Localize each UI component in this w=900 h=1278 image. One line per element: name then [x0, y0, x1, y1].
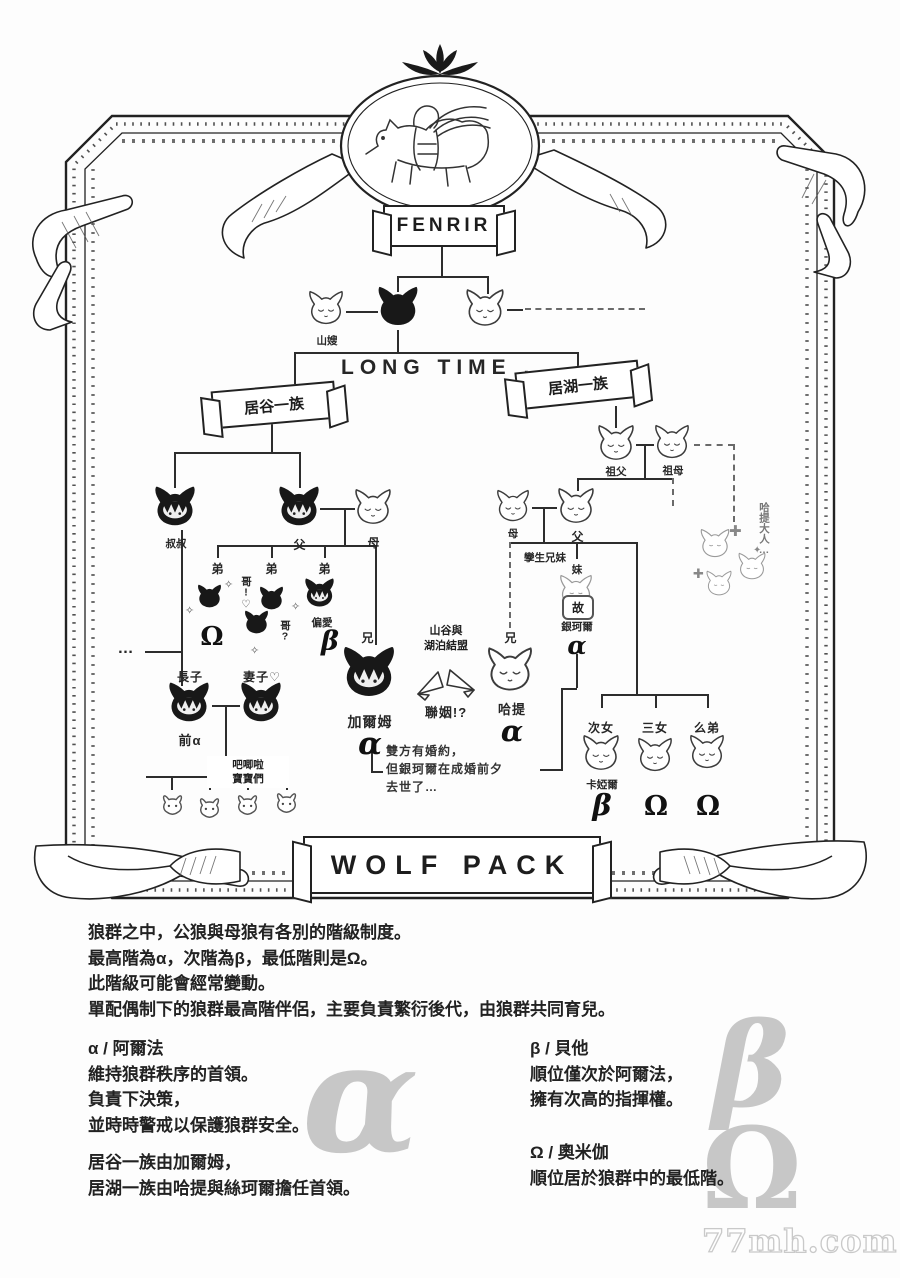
- site-watermark: 77mh.com: [702, 1222, 897, 1260]
- black-ancestor-wolf-icon: [375, 286, 421, 326]
- engagement-note-line3: 去世了…: [386, 778, 438, 795]
- valley-mother-wolf-icon: [352, 488, 394, 525]
- connector-line: [397, 276, 489, 278]
- grandfather-label: 祖父: [606, 464, 627, 479]
- hati-fans-text: 哈提大人…: [757, 502, 772, 582]
- brother-call1: 哥!♡: [239, 576, 254, 620]
- brother2a-wolf-icon: [258, 586, 285, 610]
- brother1-rank: Ω: [200, 622, 223, 652]
- third-daughter-label: 三女: [642, 719, 668, 736]
- intro-line1: 狼群之中，公狼與母狼有各別的階級制度。: [88, 920, 615, 946]
- leaders-line1: 居谷一族由加爾姆，: [88, 1150, 360, 1176]
- engagement-note-line1: 雙方有婚約，: [386, 742, 464, 759]
- uncle-wolf-icon: [152, 486, 198, 526]
- alliance-flags-icon: [408, 658, 484, 702]
- hati-rank: α: [501, 714, 523, 748]
- youngest-brother-wolf-icon: [687, 734, 727, 769]
- babies-line1: 吧唧啦: [210, 758, 286, 772]
- alliance-line2: 湖泊結盟: [424, 639, 468, 654]
- garm-wolf-icon: [340, 646, 398, 697]
- engagement-note-line2: 但銀珂爾在成婚前夕: [386, 760, 503, 777]
- third-daughter-wolf-icon: [635, 737, 675, 772]
- brother1-label: 弟: [211, 560, 224, 577]
- youngest-brother-rank: Ω: [696, 791, 720, 822]
- beta-title: β / 貝他: [530, 1036, 683, 1062]
- alliance-note: 山谷與 湖泊結盟: [424, 624, 468, 654]
- leaders-note: 居谷一族由加爾姆， 居湖一族由哈提與絲珂爾擔任首領。: [88, 1150, 360, 1201]
- valley-mother-label: 母: [367, 534, 380, 551]
- brother3-rank: β: [321, 626, 339, 657]
- connector-line: [294, 352, 296, 388]
- pup1-icon: [159, 794, 186, 816]
- ginkor-rank: α: [567, 631, 586, 660]
- yamauba-label: 山嫂: [317, 333, 338, 348]
- brother2-label: 弟: [265, 560, 278, 577]
- alpha-title: α / 阿爾法: [88, 1036, 309, 1062]
- valley-clan-name: 居谷一族: [243, 392, 305, 418]
- more-relatives-ellipsis: …: [118, 640, 135, 658]
- connector-line: [441, 245, 443, 276]
- grandmother-wolf-icon: [652, 424, 692, 459]
- lake-father-wolf-icon: [555, 487, 597, 524]
- pup4-icon: [273, 792, 300, 814]
- brother3-wolf-icon: [303, 578, 336, 607]
- lake-mother-wolf-icon: [494, 489, 532, 522]
- beta-line2: 擁有次高的指揮權。: [530, 1087, 683, 1113]
- grandfather-wolf-icon: [595, 424, 637, 461]
- beta-description: β / 貝他 順位僅次於阿爾法， 擁有次高的指揮權。: [530, 1036, 683, 1113]
- pup3-icon: [234, 794, 261, 816]
- marriage-label: 聯姻!?: [425, 702, 467, 721]
- pup2-icon: [196, 797, 223, 819]
- fan-wolf3-icon: [704, 570, 734, 596]
- beta-line1: 順位僅次於阿爾法，: [530, 1062, 683, 1088]
- wife-wolf-icon: [238, 682, 284, 722]
- alpha-line1: 維持狼群秩序的首領。: [88, 1062, 309, 1088]
- wolf-pack-title: WOLF PACK: [331, 850, 573, 881]
- garm-rank: α: [358, 726, 382, 762]
- babies-note: 吧唧啦 寶寶們: [207, 756, 289, 788]
- deceased-badge: 故: [562, 595, 594, 620]
- former-alpha-label: 前α: [179, 730, 202, 749]
- manga-page: FENRIR 山嫂 LONG TIME ... 居谷一族 居湖一族 … 叔叔 父…: [0, 0, 900, 1278]
- valley-elder-brother-label: 兄: [361, 629, 374, 646]
- connector-line: [346, 311, 378, 313]
- fenrir-crest: [338, 70, 542, 222]
- omega-line1: 順位居於狼群中的最低階。: [530, 1166, 734, 1192]
- babies-line2: 寶寶們: [210, 772, 286, 786]
- eldest-son-wolf-icon: [166, 682, 212, 722]
- lake-mother-label: 母: [508, 526, 519, 541]
- uncle-label: 叔叔: [166, 536, 187, 551]
- white-ancestor-wolf-icon: [463, 288, 507, 327]
- lake-elder-brother-label: 兄: [504, 629, 517, 646]
- brother-call2: 哥?: [278, 620, 293, 654]
- valley-father-wolf-icon: [276, 486, 322, 526]
- connector-line: [507, 309, 523, 311]
- omega-description: Ω / 奧米伽 順位居於狼群中的最低階。: [530, 1140, 734, 1191]
- kayar-wolf-icon: [580, 734, 622, 771]
- connector-line: [397, 330, 399, 354]
- alliance-line1: 山谷與: [424, 624, 468, 639]
- brother3-label: 弟: [318, 560, 331, 577]
- lake-father-label: 父: [571, 528, 584, 545]
- wolf-pack-banner: WOLF PACK: [303, 836, 601, 894]
- intro-line2: 最高階為α，次階為β，最低階則是Ω。: [88, 946, 615, 972]
- leaders-line2: 居湖一族由哈提與絲珂爾擔任首領。: [88, 1176, 360, 1202]
- lake-clan-name: 居湖一族: [547, 371, 609, 398]
- twins-label: 孿生兄妹: [522, 550, 568, 565]
- third-daughter-rank: Ω: [644, 791, 668, 822]
- valley-father-label: 父: [293, 536, 306, 553]
- fan-wolf1-icon: [698, 528, 732, 558]
- fenrir-title: FENRIR: [397, 215, 492, 237]
- connector-line: [294, 352, 579, 354]
- fenrir-banner: FENRIR: [383, 205, 505, 247]
- omega-title: Ω / 奧米伽: [530, 1140, 734, 1166]
- alpha-line3: 並時時警戒以保護狼群安全。: [88, 1113, 309, 1139]
- alpha-description: α / 阿爾法 維持狼群秩序的首領。 負責下決策， 並時時警戒以保護狼群安全。: [88, 1036, 309, 1138]
- intro-paragraph: 狼群之中，公狼與母狼有各別的階級制度。 最高階為α，次階為β，最低階則是Ω。 此…: [88, 920, 615, 1022]
- grandmother-label: 祖母: [663, 463, 684, 478]
- alpha-line2: 負責下決策，: [88, 1087, 309, 1113]
- hati-wolf-icon: [484, 646, 536, 692]
- second-daughter-rank: β: [592, 788, 611, 822]
- intro-line3: 此階級可能會經常變動。: [88, 971, 615, 997]
- connector-line-dashed: [525, 308, 645, 310]
- brother1-wolf-icon: [196, 584, 223, 608]
